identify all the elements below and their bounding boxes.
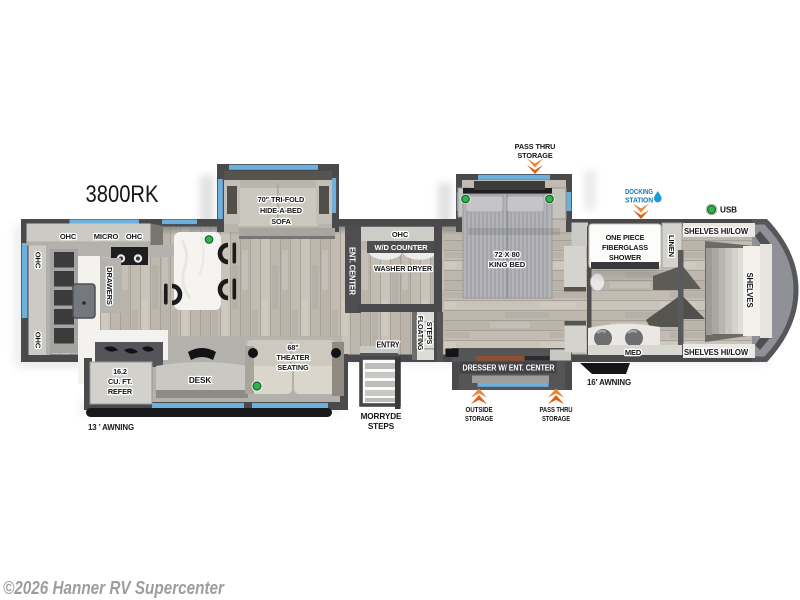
svg-text:SHELVES HI/LOW: SHELVES HI/LOW	[684, 227, 749, 236]
svg-text:OUTSIDE: OUTSIDE	[466, 405, 493, 414]
svg-text:CU. FT.: CU. FT.	[108, 377, 132, 386]
svg-text:3800RK: 3800RK	[86, 181, 159, 208]
svg-text:STORAGE: STORAGE	[517, 151, 552, 160]
svg-text:PASS THRU: PASS THRU	[515, 142, 556, 151]
svg-text:DESK: DESK	[189, 376, 212, 385]
svg-text:SOFA: SOFA	[271, 217, 291, 226]
svg-text:THEATER: THEATER	[276, 353, 310, 362]
svg-text:W/D COUNTER: W/D COUNTER	[375, 243, 429, 252]
svg-text:OHC: OHC	[60, 232, 77, 241]
svg-text:OHC: OHC	[34, 252, 43, 269]
svg-text:ENT. CENTER: ENT. CENTER	[348, 247, 357, 295]
svg-text:HIDE-A-BED: HIDE-A-BED	[260, 206, 302, 215]
svg-text:68": 68"	[287, 343, 298, 352]
svg-text:STEPS: STEPS	[425, 322, 432, 345]
svg-text:PASS THRU: PASS THRU	[540, 405, 573, 414]
svg-text:ENTRY: ENTRY	[377, 341, 401, 350]
svg-text:DRESSER W/ ENT. CENTER: DRESSER W/ ENT. CENTER	[463, 363, 555, 372]
svg-text:STORAGE: STORAGE	[465, 414, 493, 423]
svg-text:70" TRI-FOLD: 70" TRI-FOLD	[258, 195, 304, 204]
svg-text:DRAWERS: DRAWERS	[105, 267, 114, 305]
svg-text:FLOATING: FLOATING	[416, 316, 423, 351]
svg-text:MICRO: MICRO	[94, 232, 119, 241]
svg-text:FIBERGLASS: FIBERGLASS	[602, 243, 648, 252]
svg-text:SHOWER: SHOWER	[609, 253, 642, 262]
svg-text:STATION: STATION	[625, 196, 653, 205]
svg-text:USB: USB	[720, 206, 737, 215]
svg-text:16′ AWNING: 16′ AWNING	[587, 378, 631, 387]
svg-text:STORAGE: STORAGE	[542, 414, 570, 423]
svg-text:SHELVES HI/LOW: SHELVES HI/LOW	[684, 348, 749, 357]
svg-text:13 ’ AWNING: 13 ’ AWNING	[88, 423, 134, 432]
svg-text:SEATING: SEATING	[277, 363, 309, 372]
svg-text:72 X 80: 72 X 80	[494, 250, 519, 259]
svg-text:KING BED: KING BED	[489, 260, 526, 269]
svg-text:16.2: 16.2	[113, 367, 127, 376]
svg-text:MED: MED	[625, 348, 642, 357]
svg-text:LINEN: LINEN	[667, 235, 676, 257]
svg-text:SHELVES: SHELVES	[745, 272, 754, 307]
svg-text:ONE PIECE: ONE PIECE	[606, 233, 645, 242]
svg-text:©2026 Hanner RV Supercenter: ©2026 Hanner RV Supercenter	[3, 578, 225, 598]
svg-text:OHC: OHC	[392, 230, 409, 239]
svg-text:WASHER DRYER: WASHER DRYER	[374, 264, 433, 273]
svg-text:REFER: REFER	[108, 387, 133, 396]
svg-text:OHC: OHC	[126, 232, 143, 241]
svg-text:OHC: OHC	[34, 332, 43, 349]
svg-text:MORRYDE: MORRYDE	[361, 412, 402, 421]
svg-text:STEPS: STEPS	[368, 422, 395, 431]
